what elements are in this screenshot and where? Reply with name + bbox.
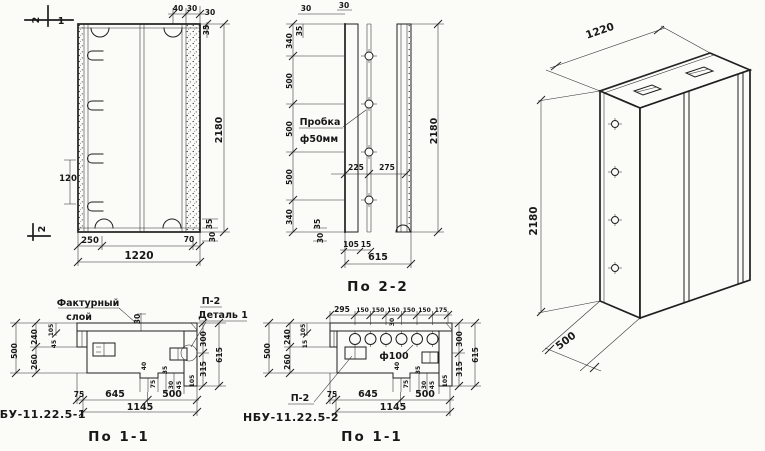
dim-label: 105: [442, 375, 449, 388]
dim-label: 1145: [127, 402, 153, 413]
layer-label-line1: Фактурный: [57, 298, 120, 309]
iso-height-dim: [538, 91, 600, 313]
iso-wide-face: [640, 70, 750, 318]
dim-label: 40: [394, 362, 401, 370]
strip-chamfer: [446, 323, 452, 330]
dim-label: 240: [283, 329, 292, 345]
dim-label: 615: [471, 347, 480, 363]
dim-label: 300: [199, 331, 208, 347]
dim-label: 500: [263, 343, 272, 359]
dim-label: 150: [403, 307, 416, 314]
dim-label: 260: [283, 354, 292, 370]
dim-label: 75: [403, 380, 410, 388]
dim-label: 260: [30, 354, 39, 370]
dim-label: 500: [285, 169, 294, 185]
view-plan-section-item1: Фактурный слой П-2 Деталь 1 30 500 240 2…: [0, 296, 248, 445]
anchor-hooks: [88, 51, 104, 211]
dim-label: 250: [81, 236, 99, 246]
dim-label: 105: [189, 375, 196, 388]
rib-hatch: [407, 24, 411, 232]
facade-leaf-section: [345, 24, 358, 232]
dim-label: 340: [285, 33, 294, 49]
dim-label: 30: [205, 8, 215, 17]
dim-label: 240: [30, 329, 39, 345]
dim-label: 315: [199, 361, 208, 377]
round-hole: [365, 334, 376, 345]
dim-label: 15: [361, 240, 371, 249]
round-hole: [381, 334, 392, 345]
plug-label-line1: Пробка: [300, 117, 341, 128]
detail-ref-label: П-2: [291, 393, 310, 404]
detail-ref-label: П-2: [202, 296, 221, 307]
dim-label: 150: [356, 307, 369, 314]
rib-inner-lines: [401, 24, 407, 232]
dim-label: 2180: [214, 116, 225, 143]
dim-label: 150: [418, 307, 431, 314]
dim-label: 225: [348, 163, 364, 172]
dim-label: 315: [455, 361, 464, 377]
round-hole: [396, 334, 407, 345]
dim-label: 1145: [380, 402, 406, 413]
dim-label: 175: [435, 307, 448, 314]
round-hole: [427, 334, 438, 345]
round-hole: [350, 334, 361, 345]
dim-label: 35: [202, 25, 211, 35]
section-mark-2-left: 2: [37, 226, 48, 233]
view-section-2-2: 340 500 500 500 340 Пробка ф50мм 225 275…: [285, 1, 444, 295]
embedded-plate: [345, 347, 366, 359]
item-mark-title: НБУ-11.22.5-2: [243, 411, 339, 424]
dim-label: 30: [168, 381, 175, 389]
plug-label-line2: ф50мм: [300, 134, 338, 145]
dim-label: 500: [285, 121, 294, 137]
section-mark-2-top: 2: [31, 17, 42, 24]
dim-label: 615: [368, 252, 388, 263]
round-hole: [412, 334, 423, 345]
dim-label: 40: [141, 362, 148, 370]
dim-label: 105: [48, 324, 55, 337]
dim-label: 45: [51, 340, 58, 348]
dim-label: 30: [301, 4, 311, 13]
dim-label: 105: [300, 324, 307, 337]
dim-label: 15: [302, 340, 309, 348]
dim-label: 40: [173, 4, 183, 13]
dim-label: 500: [10, 343, 19, 359]
plug-hole: [365, 196, 373, 204]
iso-depth-ticks: [545, 345, 599, 372]
plug-axes: [361, 49, 377, 207]
layer-label-line2: слой: [66, 312, 92, 323]
dim-label: 500: [554, 330, 579, 353]
view-caption: По 2-2: [347, 279, 409, 295]
iso-narrow-face: [600, 91, 640, 318]
plug-hole: [365, 52, 373, 60]
iso-plug: [612, 121, 619, 128]
dim-label: 150: [372, 307, 385, 314]
view-caption: По 1-1: [341, 429, 403, 445]
dim-label: 1220: [124, 250, 153, 262]
dim-label: 30: [316, 233, 325, 243]
dim-label: 35: [162, 366, 169, 374]
dim-label: 2180: [528, 206, 540, 235]
section-mark-1: 1: [58, 16, 65, 27]
panel-rib-hatch: [186, 24, 200, 232]
dim-label: 35: [205, 219, 214, 229]
dim-label: 75: [150, 380, 157, 388]
dim-label: 120: [59, 174, 77, 184]
dim-label: 300: [455, 331, 464, 347]
facade-edge-hatch: [78, 24, 84, 232]
dim-label: 500: [415, 389, 435, 400]
iso-plug: [612, 217, 619, 224]
strip-chamfer: [191, 323, 197, 330]
dim-label: 500: [162, 389, 182, 400]
view-isometric: 1220 2180 500: [528, 21, 750, 372]
plug-hole: [365, 148, 373, 156]
dim-label: 35: [415, 366, 422, 374]
dim-label: 150: [387, 307, 400, 314]
dim-label: 30: [339, 1, 349, 10]
iso-plug: [612, 169, 619, 176]
dim-label: 30: [208, 232, 217, 242]
dim-label: 340: [285, 209, 294, 225]
dim-label: 70: [184, 235, 194, 244]
lifting-recesses: [91, 28, 182, 228]
dim-label: 30: [421, 381, 428, 389]
view-caption: По 1-1: [88, 429, 150, 445]
dim-label: 35: [313, 219, 322, 229]
embedded-plate: [170, 348, 187, 360]
section-cut-lines: [25, 6, 73, 240]
dim-label: 2180: [429, 117, 440, 144]
view-plan-section-item2: 295 150 150 150 150 150 175 30 ф100 П-2 …: [243, 305, 481, 445]
dim-label: 35: [295, 26, 304, 36]
dim-label: 75: [74, 390, 84, 399]
dim-label: 645: [105, 389, 125, 400]
panel-inner-lines: [78, 24, 200, 232]
dim-label: 30: [187, 4, 197, 13]
dim-label: 75: [327, 390, 337, 399]
blueprint-sheet: 2 1 2 120 40 30 30 35 2180 35 30 250 70 …: [0, 0, 765, 451]
view-front-elevation: 2 1 2 120 40 30 30 35 2180 35 30 250 70 …: [25, 4, 230, 266]
dim-label: 295: [334, 305, 350, 314]
hole-diameter-label: ф100: [379, 351, 409, 362]
dim-label: 275: [379, 163, 395, 172]
dim-label: 45: [176, 381, 183, 389]
item-mark-title: НБУ-11.22.5-1: [0, 408, 86, 421]
dim-label: 45: [429, 381, 436, 389]
dim-label: 500: [285, 73, 294, 89]
dim-label: 1220: [584, 21, 616, 42]
iso-plug: [612, 265, 619, 272]
dim-label: 645: [358, 389, 378, 400]
blueprint-canvas: 2 1 2 120 40 30 30 35 2180 35 30 250 70 …: [0, 0, 765, 451]
dim-label: 30: [133, 314, 142, 324]
dim-label: 30: [389, 318, 396, 326]
dim-label: 105: [343, 240, 359, 249]
dim-label: 615: [215, 347, 224, 363]
plug-hole: [365, 100, 373, 108]
panel-outline: [78, 24, 200, 232]
